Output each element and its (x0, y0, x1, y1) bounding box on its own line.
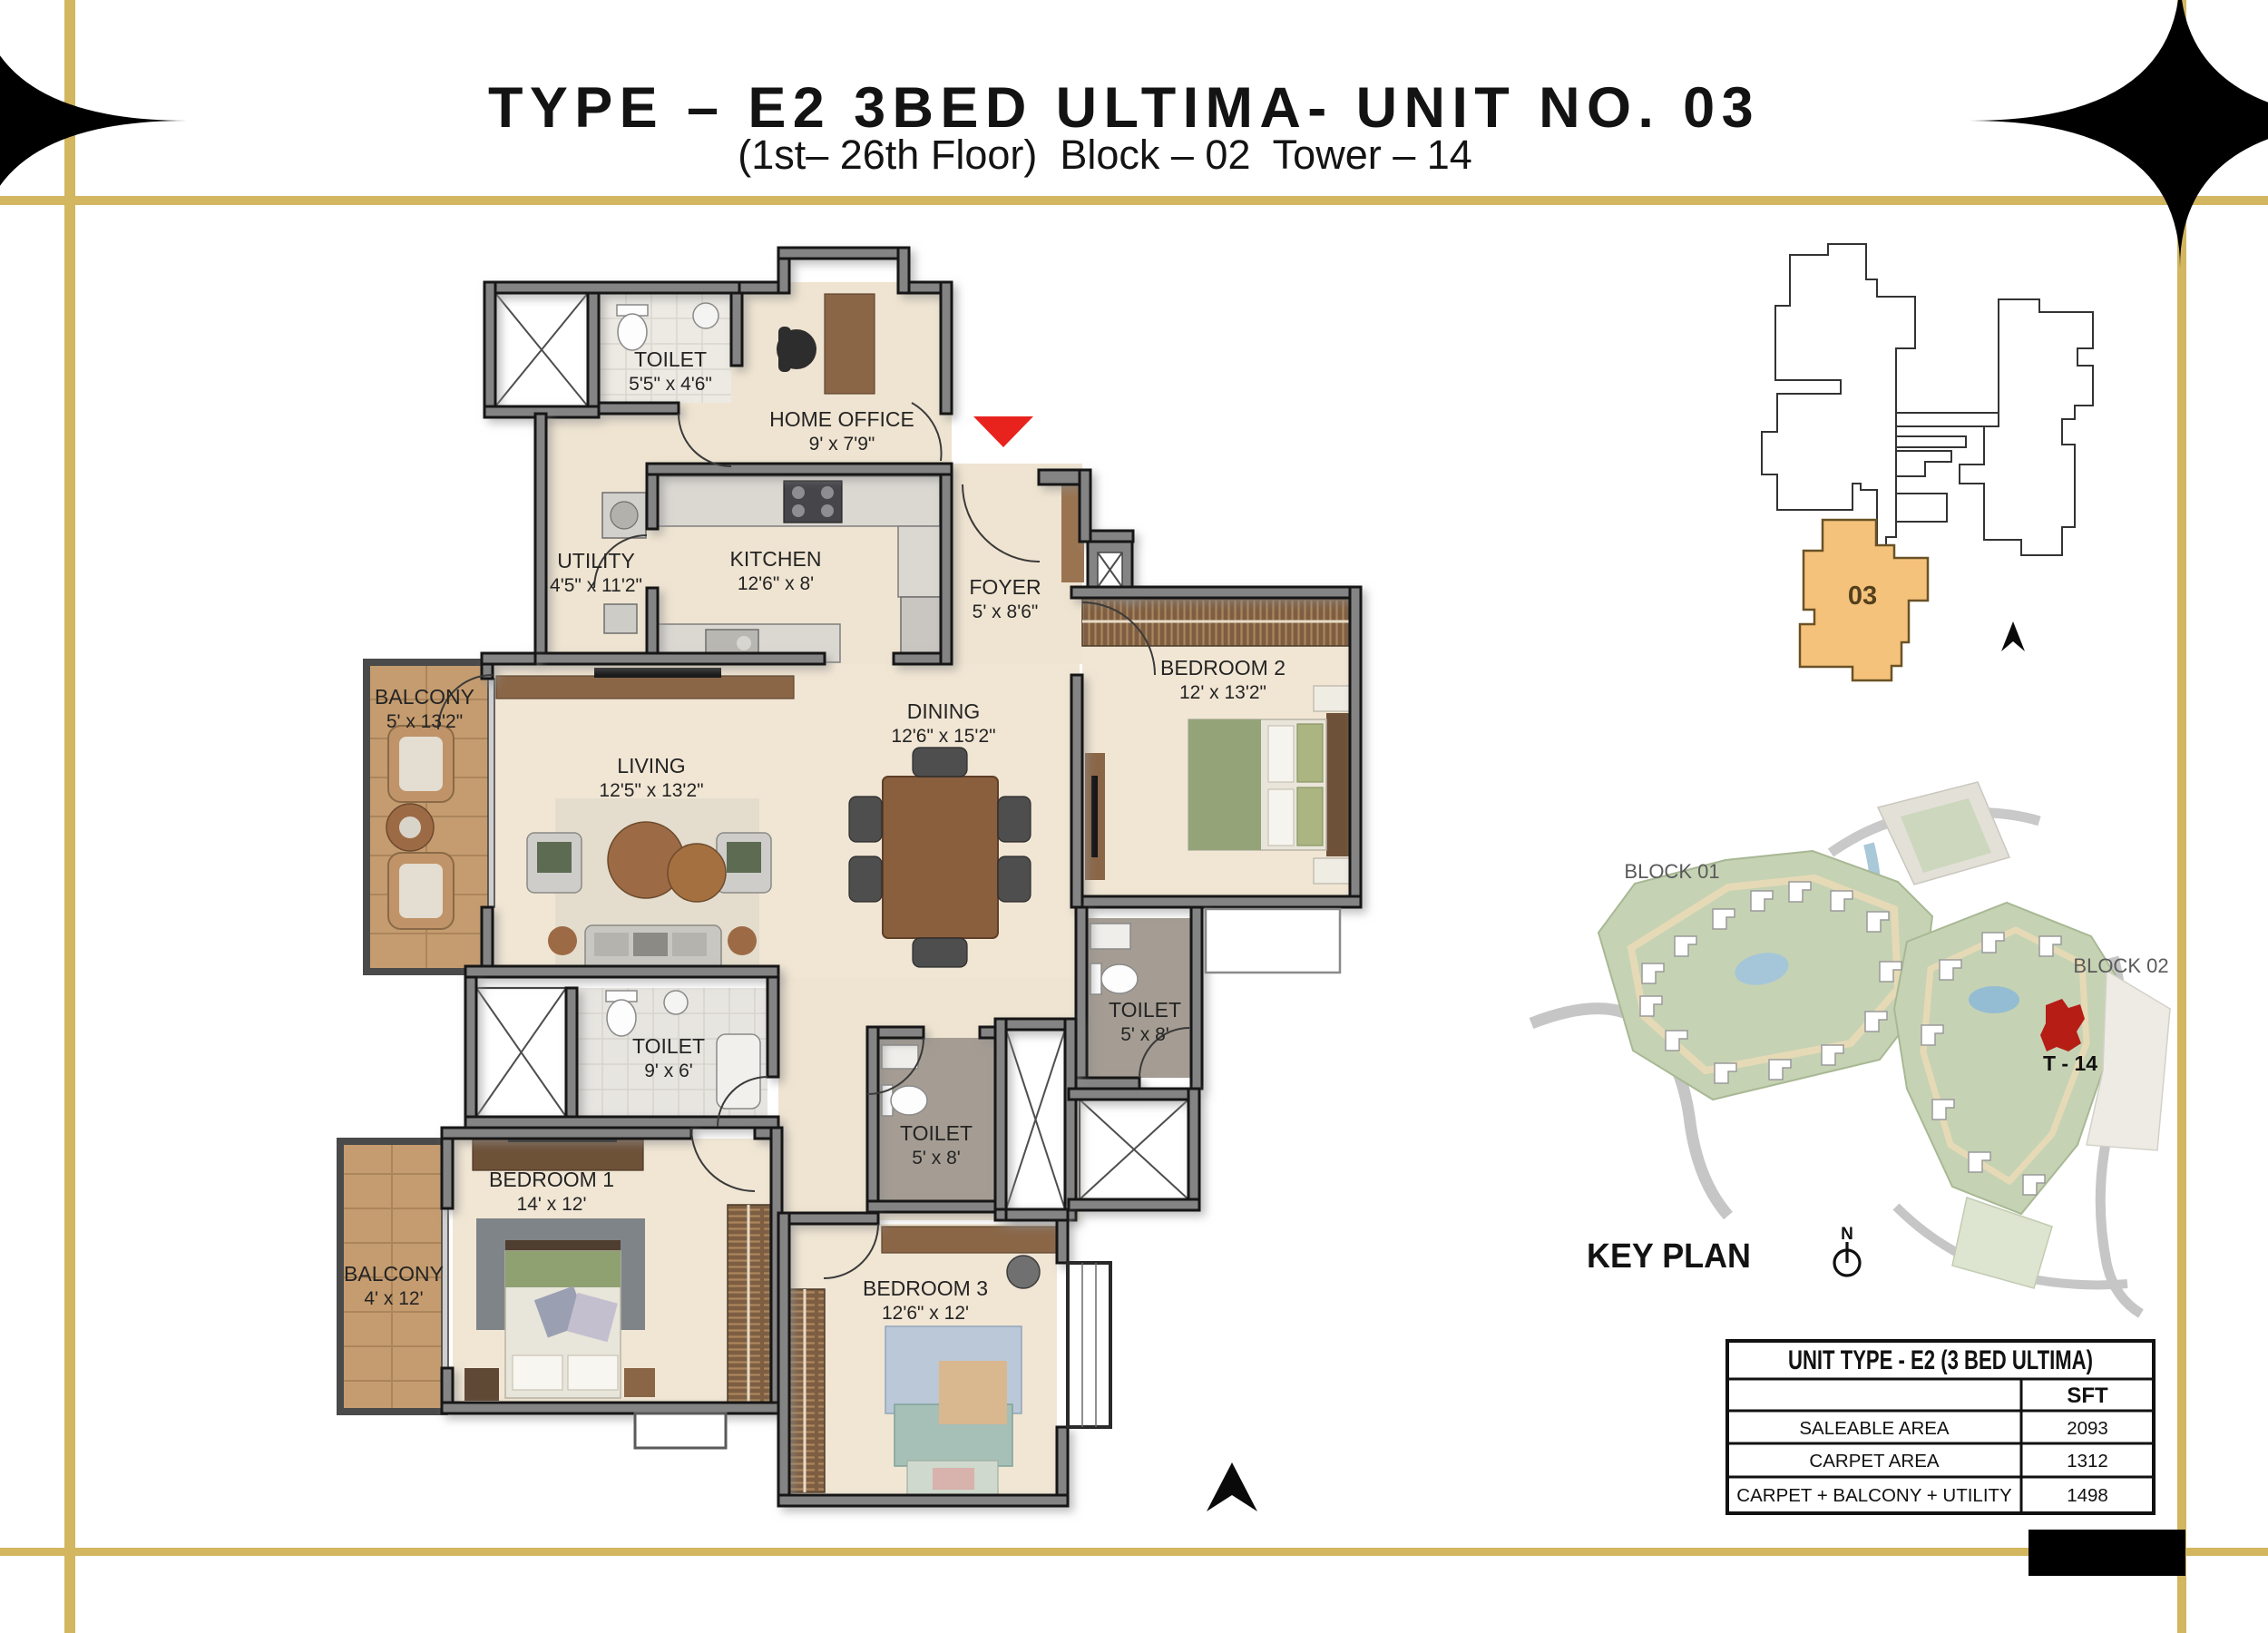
svg-text:FOYER: FOYER (969, 575, 1041, 599)
svg-text:CARPET + BALCONY + UTILITY: CARPET + BALCONY + UTILITY (1736, 1485, 2012, 1506)
svg-text:TOILET: TOILET (1109, 998, 1181, 1022)
svg-text:12'6" x 15'2": 12'6" x 15'2" (891, 726, 995, 747)
svg-text:BLOCK 01: BLOCK 01 (1624, 860, 1719, 883)
svg-text:14' x 12': 14' x 12' (517, 1194, 587, 1215)
svg-text:BALCONY: BALCONY (375, 685, 474, 709)
svg-text:1498: 1498 (2067, 1485, 2108, 1506)
svg-text:KITCHEN: KITCHEN (730, 547, 822, 571)
svg-text:BALCONY: BALCONY (344, 1262, 444, 1286)
svg-text:BLOCK 02: BLOCK 02 (2073, 954, 2168, 977)
svg-text:1312: 1312 (2067, 1451, 2108, 1472)
svg-text:BEDROOM 3: BEDROOM 3 (863, 1276, 988, 1300)
svg-text:TYPE – E2 3BED ULTIMA- UNIT NO: TYPE – E2 3BED ULTIMA- UNIT NO. 03 (488, 76, 1760, 140)
svg-text:TOILET: TOILET (900, 1121, 973, 1145)
svg-text:4' x 12': 4' x 12' (364, 1288, 423, 1309)
svg-text:LIVING: LIVING (617, 754, 685, 777)
svg-text:SFT: SFT (2067, 1384, 2108, 1408)
svg-text:SALEABLE AREA: SALEABLE AREA (1799, 1418, 1950, 1439)
svg-text:UTILITY: UTILITY (557, 549, 635, 572)
svg-text:12'5" x 13'2": 12'5" x 13'2" (599, 780, 703, 801)
svg-text:5'5" x 4'6": 5'5" x 4'6" (629, 374, 712, 395)
svg-text:BEDROOM 2: BEDROOM 2 (1160, 656, 1286, 680)
svg-text:UNIT TYPE - E2 (3 BED ULTIMA): UNIT TYPE - E2 (3 BED ULTIMA) (1788, 1345, 2093, 1375)
svg-text:12'6" x 8': 12'6" x 8' (738, 573, 814, 594)
svg-text:DINING: DINING (907, 699, 981, 723)
svg-text:9' x 6': 9' x 6' (644, 1061, 693, 1081)
svg-text:5' x 8': 5' x 8' (1120, 1024, 1169, 1045)
svg-text:TOILET: TOILET (632, 1034, 705, 1058)
svg-text:HOME OFFICE: HOME OFFICE (769, 407, 914, 431)
svg-text:9' x 7'9": 9' x 7'9" (809, 434, 875, 455)
svg-text:5' x 13'2": 5' x 13'2" (386, 711, 463, 732)
svg-text:TOILET: TOILET (634, 347, 707, 371)
svg-text:N: N (1841, 1225, 1853, 1244)
svg-text:5' x 8'6": 5' x 8'6" (973, 601, 1039, 622)
svg-text:CARPET AREA: CARPET AREA (1809, 1451, 1939, 1472)
svg-text:12' x 13'2": 12' x 13'2" (1179, 682, 1266, 703)
svg-text:BEDROOM 1: BEDROOM 1 (489, 1168, 614, 1191)
svg-text:12'6" x 12': 12'6" x 12' (882, 1303, 969, 1324)
svg-text:03: 03 (1848, 582, 1877, 611)
svg-text:T - 14: T - 14 (2043, 1051, 2097, 1075)
svg-text:2093: 2093 (2067, 1418, 2108, 1439)
svg-text:4'5" x 11'2": 4'5" x 11'2" (550, 575, 642, 596)
svg-text:KEY PLAN: KEY PLAN (1587, 1237, 1751, 1276)
svg-text:(1st– 26th Floor) Block – 02: (1st– 26th Floor) Block – 02 Tower – 14 (738, 132, 1472, 178)
svg-text:5' x 8': 5' x 8' (912, 1148, 961, 1169)
